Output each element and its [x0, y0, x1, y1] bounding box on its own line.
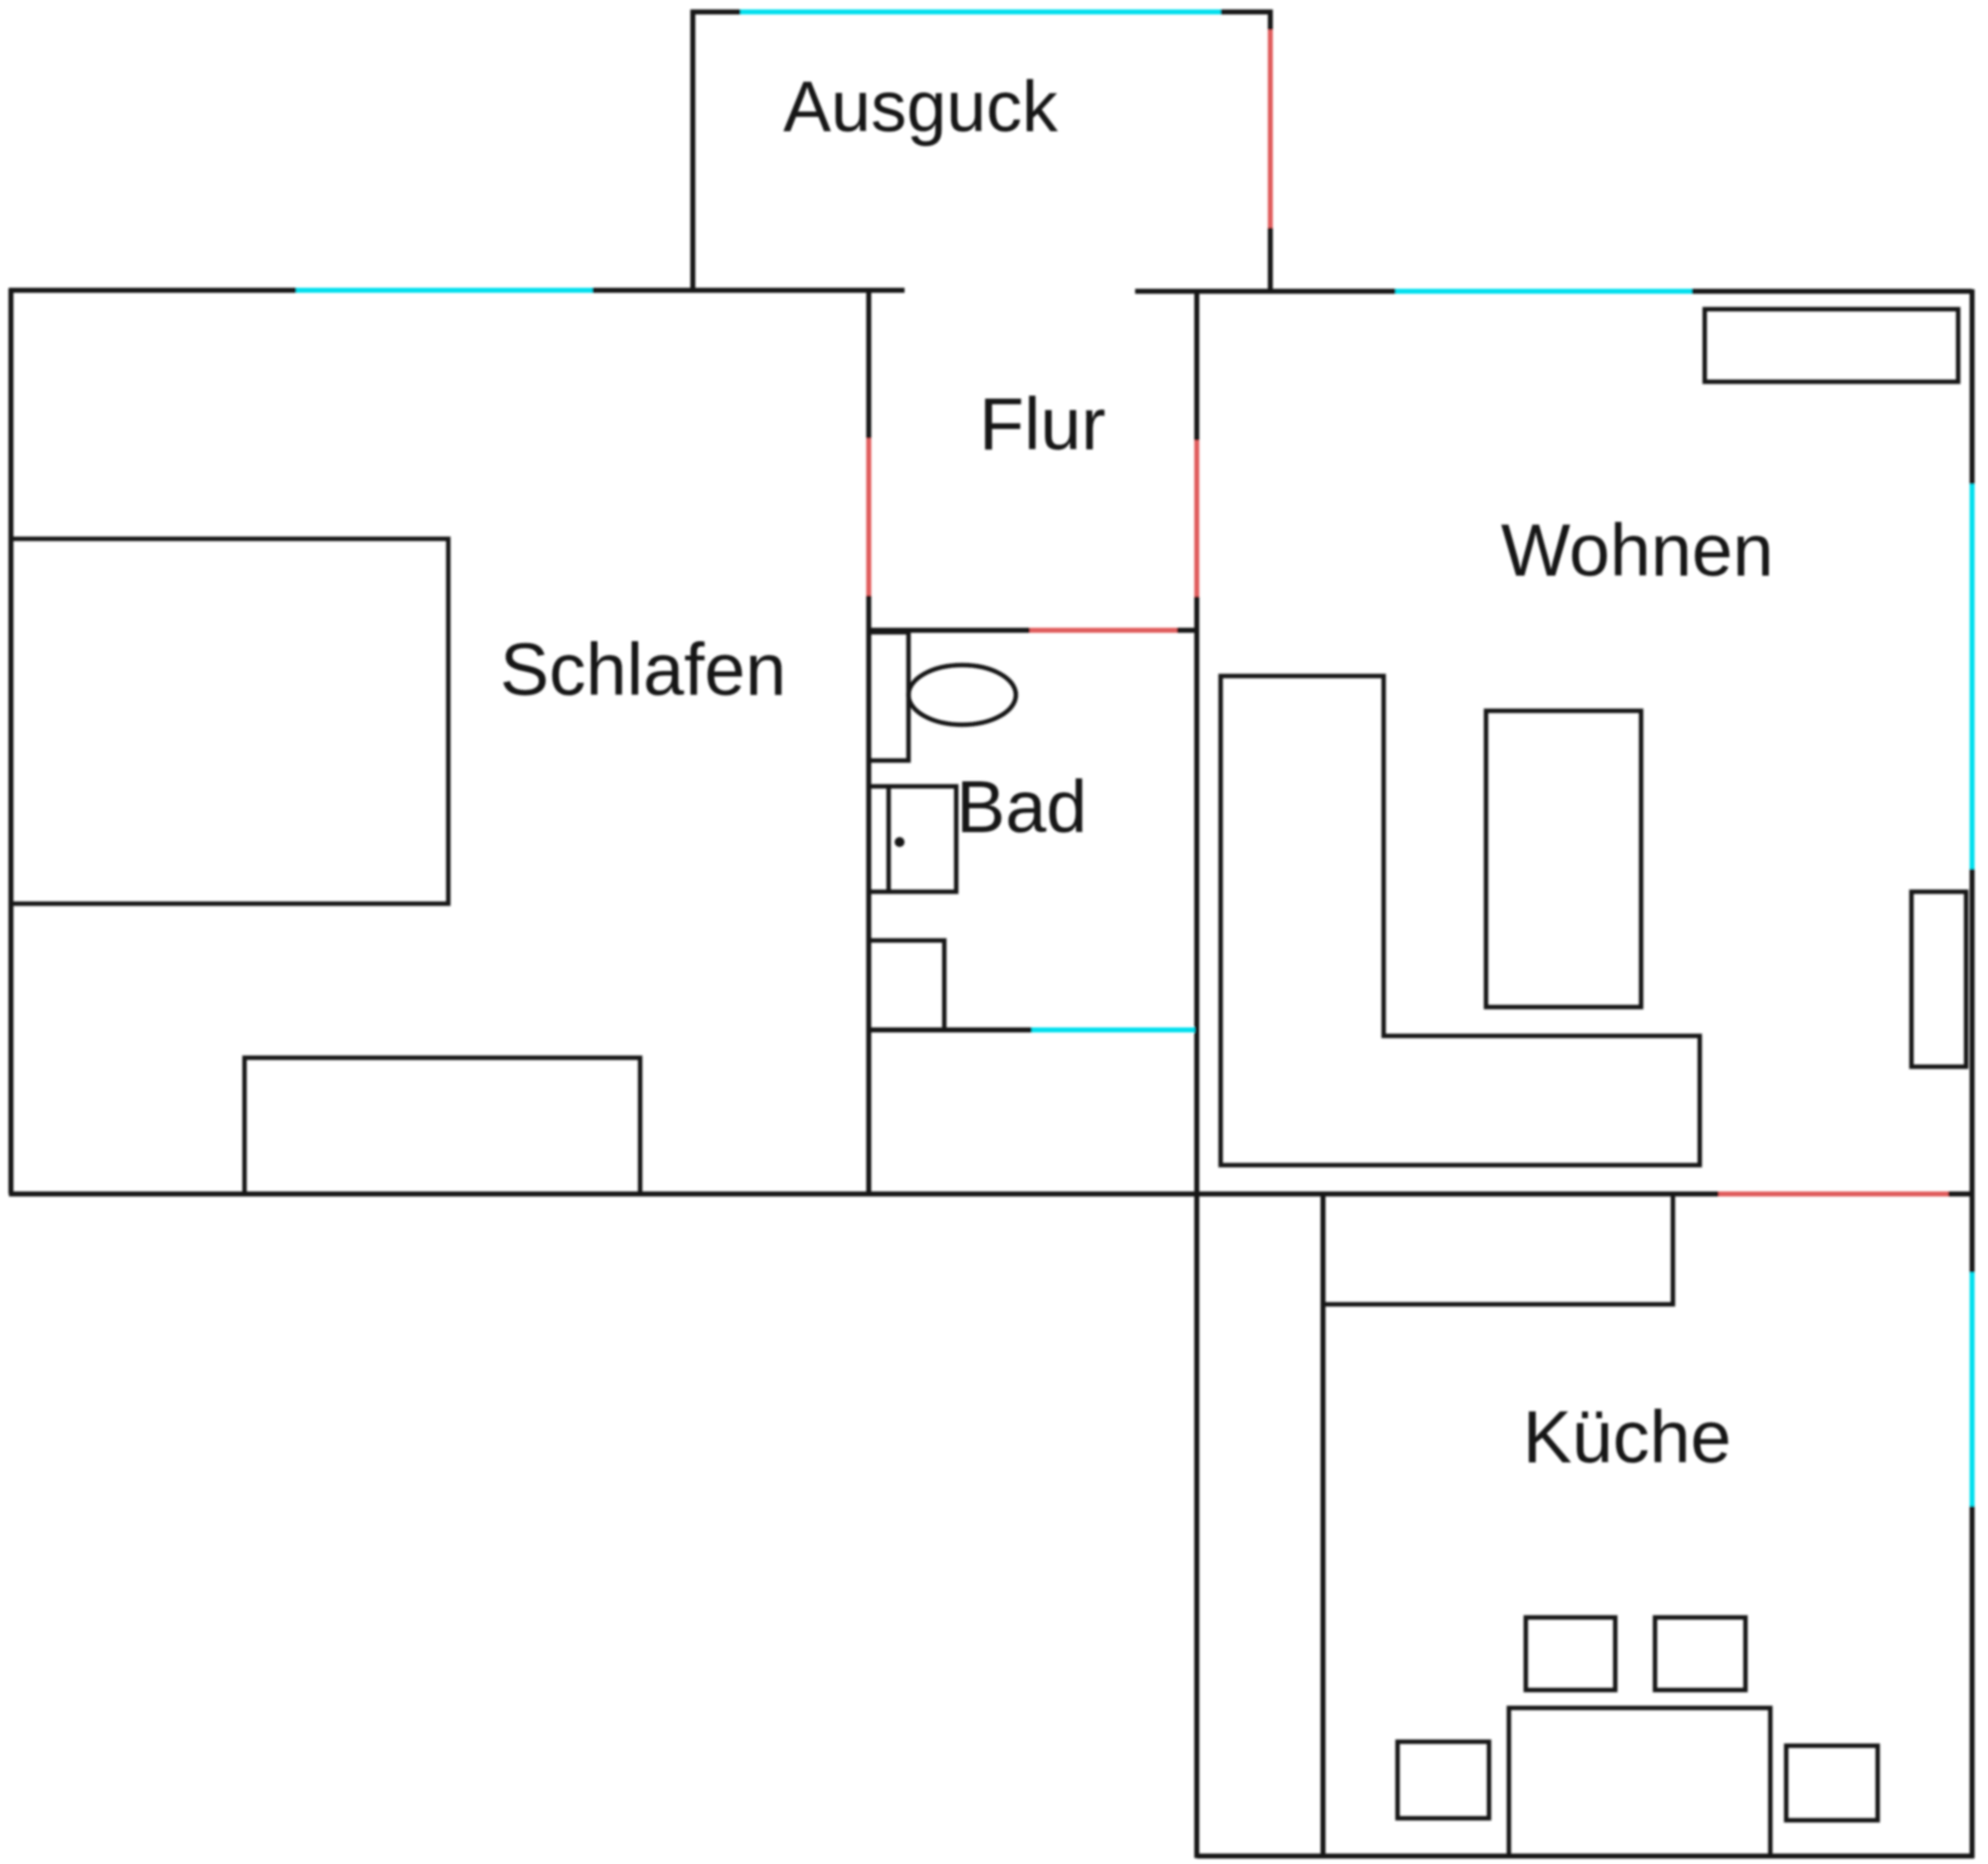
svg-text:Flur: Flur	[979, 383, 1105, 465]
svg-text:Küche: Küche	[1523, 1396, 1732, 1478]
svg-text:Wohnen: Wohnen	[1501, 509, 1773, 592]
svg-text:Bad: Bad	[956, 765, 1087, 848]
svg-text:Ausguck: Ausguck	[783, 68, 1059, 147]
svg-text:Schlafen: Schlafen	[500, 628, 786, 711]
